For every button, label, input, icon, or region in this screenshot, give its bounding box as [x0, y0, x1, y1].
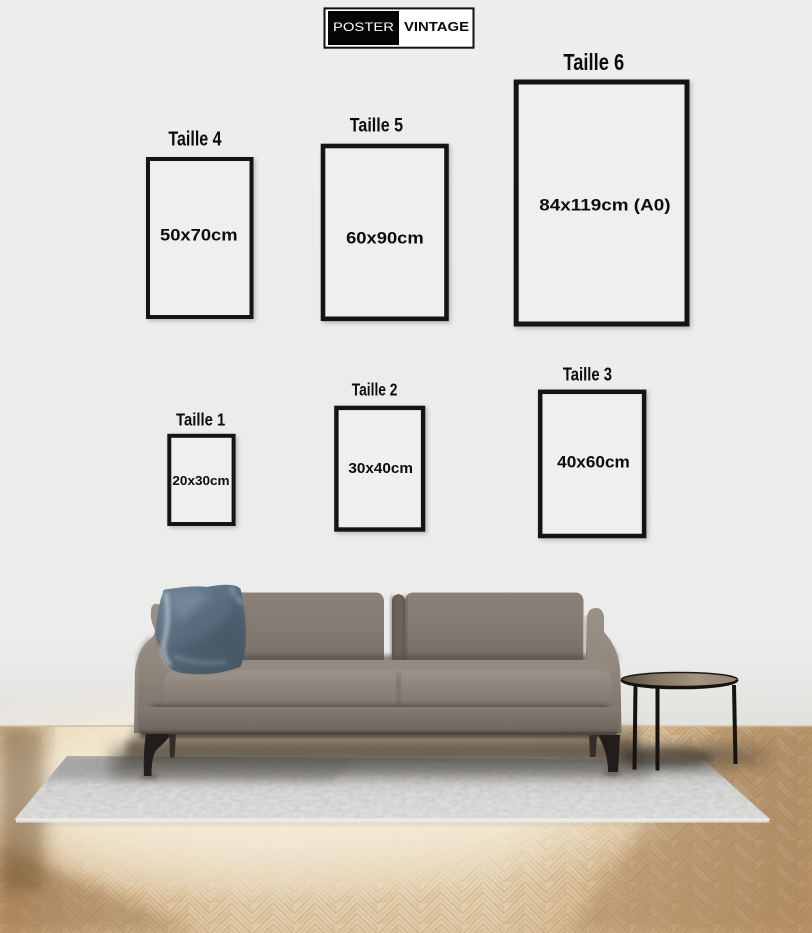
svg-text:84x119cm (A0): 84x119cm (A0) [539, 195, 670, 214]
svg-text:Taille 4: Taille 4 [168, 129, 222, 151]
svg-text:Taille 5: Taille 5 [350, 115, 404, 136]
svg-text:Taille 3: Taille 3 [563, 364, 612, 385]
svg-text:20x30cm: 20x30cm [172, 473, 229, 488]
svg-text:Taille 6: Taille 6 [563, 49, 624, 75]
svg-text:60x90cm: 60x90cm [346, 229, 424, 248]
svg-text:Taille 1: Taille 1 [176, 410, 225, 430]
svg-text:POSTER: POSTER [333, 22, 394, 34]
svg-text:VINTAGE: VINTAGE [404, 19, 469, 34]
svg-text:50x70cm: 50x70cm [160, 226, 238, 245]
svg-text:Taille 2: Taille 2 [352, 379, 398, 399]
svg-text:30x40cm: 30x40cm [348, 460, 413, 477]
svg-text:40x60cm: 40x60cm [557, 453, 630, 472]
